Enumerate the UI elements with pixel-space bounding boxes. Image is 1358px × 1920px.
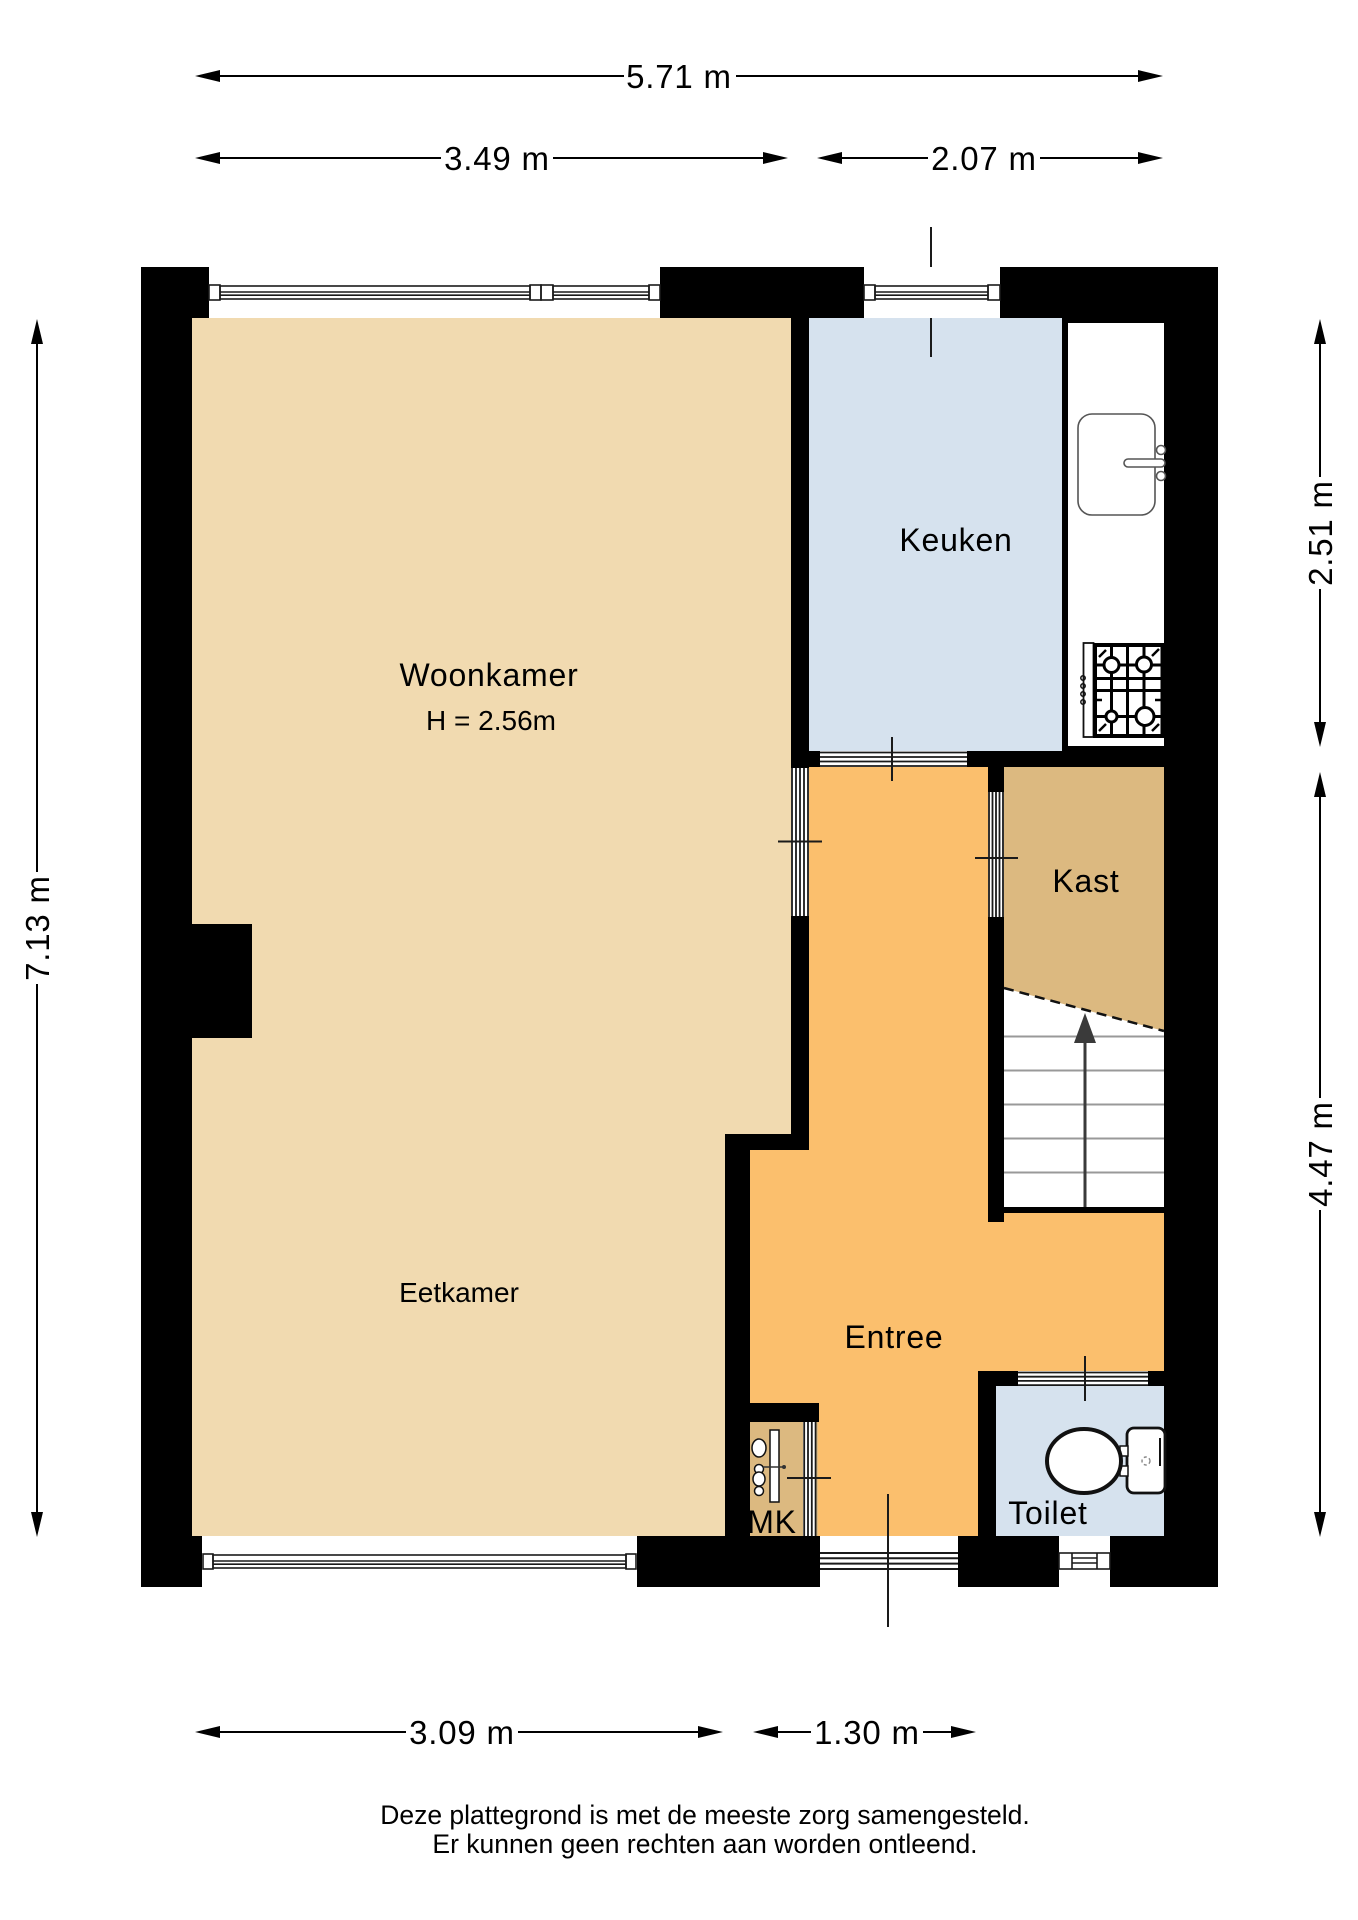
svg-text:H = 2.56m: H = 2.56m (426, 705, 556, 736)
svg-text:7.13 m: 7.13 m (19, 875, 56, 981)
svg-text:5.71 m: 5.71 m (626, 58, 732, 95)
svg-text:Er kunnen geen rechten aan wor: Er kunnen geen rechten aan worden ontlee… (432, 1829, 977, 1859)
svg-text:4.47 m: 4.47 m (1302, 1101, 1339, 1207)
svg-text:Toilet: Toilet (1008, 1495, 1088, 1531)
svg-text:2.07 m: 2.07 m (931, 140, 1037, 177)
svg-text:2.51 m: 2.51 m (1302, 480, 1339, 586)
svg-text:Eetkamer: Eetkamer (399, 1277, 519, 1308)
svg-text:Keuken: Keuken (899, 522, 1012, 558)
svg-text:3.09 m: 3.09 m (409, 1714, 515, 1751)
svg-text:3.49 m: 3.49 m (444, 140, 550, 177)
svg-text:MK: MK (747, 1504, 797, 1540)
svg-text:1.30 m: 1.30 m (814, 1714, 920, 1751)
svg-text:Kast: Kast (1052, 863, 1119, 899)
svg-text:Entree: Entree (844, 1319, 943, 1355)
svg-text:Deze plattegrond is met de mee: Deze plattegrond is met de meeste zorg s… (380, 1800, 1030, 1830)
svg-text:Woonkamer: Woonkamer (399, 657, 578, 693)
